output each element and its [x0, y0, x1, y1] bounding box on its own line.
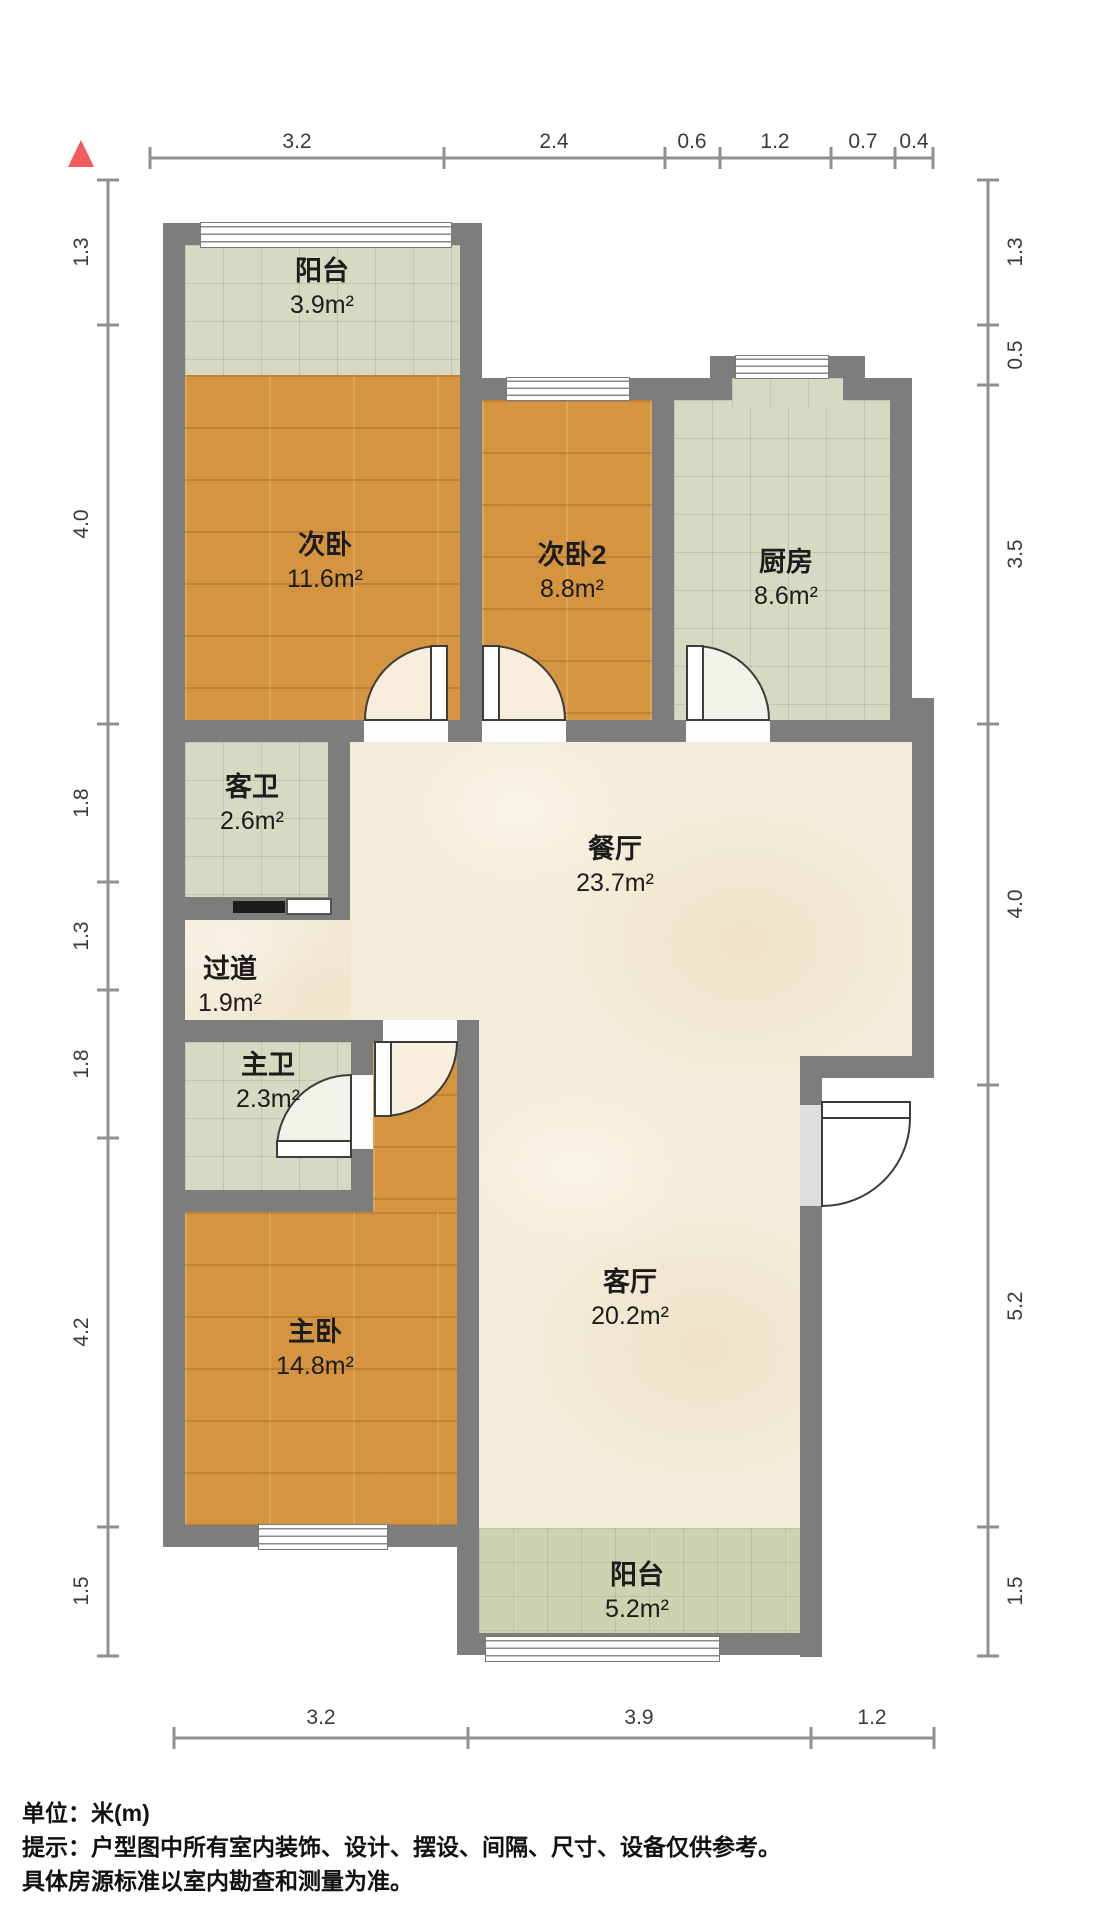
- dim-right-6: 1.5: [1004, 1576, 1028, 1605]
- window-balcony-bottom: [485, 1636, 720, 1662]
- wall: [912, 698, 934, 1078]
- dim-bottom-1: 3.2: [306, 1706, 335, 1730]
- dim-bottom-3: 1.2: [857, 1706, 886, 1730]
- window-kitchen: [735, 355, 829, 379]
- wall: [185, 720, 912, 742]
- wall: [163, 1020, 383, 1042]
- room-label-hallway: 过道 1.9m²: [140, 952, 320, 1020]
- dim-left-7: 1.5: [70, 1576, 94, 1605]
- dim-left-1: 1.3: [70, 237, 94, 266]
- wall: [460, 223, 482, 742]
- dim-top-4: 1.2: [760, 130, 789, 154]
- floor-master-bedroom-entry: [373, 1042, 457, 1212]
- room-label-guest-bath: 客卫 2.6m²: [162, 770, 342, 838]
- wall: [163, 1190, 373, 1212]
- room-label-master-bedroom: 主卧 14.8m²: [225, 1315, 405, 1383]
- room-label-bedroom1: 次卧 11.6m²: [235, 528, 415, 596]
- dim-top-1: 3.2: [282, 130, 311, 154]
- room-label-dining: 餐厅 23.7m²: [525, 832, 705, 900]
- wall: [800, 1056, 822, 1657]
- door-leaf-entry: [822, 1102, 910, 1118]
- wall: [163, 897, 350, 920]
- wall: [457, 1020, 479, 1525]
- footer-unit-note: 单位：米(m): [22, 1794, 150, 1828]
- dim-right-3: 3.5: [1004, 539, 1028, 568]
- dim-top-5: 0.7: [848, 130, 877, 154]
- dim-left-6: 4.2: [70, 1317, 94, 1346]
- dim-left-4: 1.3: [70, 921, 94, 950]
- wall: [163, 223, 185, 1547]
- floor-kitchen-bay: [732, 378, 843, 408]
- dim-top-2: 2.4: [539, 130, 568, 154]
- room-label-balcony-bottom: 阳台 5.2m²: [547, 1558, 727, 1626]
- dim-left-3: 1.8: [70, 788, 94, 817]
- room-label-balcony-top: 阳台 3.9m²: [232, 254, 412, 322]
- dim-top-3: 0.6: [677, 130, 706, 154]
- dim-right-5: 5.2: [1004, 1291, 1028, 1320]
- wall: [890, 378, 912, 720]
- window-bedroom2: [506, 377, 630, 401]
- wall: [843, 356, 865, 400]
- footer-tip-line2: 具体房源标准以室内勘查和测量为准。: [22, 1862, 413, 1896]
- dim-top-6: 0.4: [899, 130, 928, 154]
- window-balcony-top: [200, 222, 452, 248]
- dim-right-2: 0.5: [1004, 340, 1028, 369]
- window-master-bedroom: [258, 1524, 388, 1550]
- dim-bottom-2: 3.9: [624, 1706, 653, 1730]
- floor-dining: [350, 742, 912, 1078]
- floor-plan: 阳台 3.9m² 次卧 11.6m² 次卧2 8.8m² 厨房 8.6m² 客卫…: [0, 0, 1093, 1920]
- door-arc-entry: [822, 1118, 910, 1206]
- footer-tip-line1: 提示：户型图中所有室内装饰、设计、摆设、间隔、尺寸、设备仅供参考。: [22, 1828, 781, 1862]
- room-label-bedroom2: 次卧2 8.8m²: [482, 538, 662, 606]
- north-indicator-icon: [68, 140, 94, 167]
- dim-right-4: 4.0: [1004, 889, 1028, 918]
- dim-left-5: 1.8: [70, 1049, 94, 1078]
- room-label-master-bath: 主卫 2.3m²: [178, 1048, 358, 1116]
- room-label-living: 客厅 20.2m²: [540, 1265, 720, 1333]
- room-label-kitchen: 厨房 8.6m²: [696, 545, 876, 613]
- dim-left-2: 4.0: [70, 509, 94, 538]
- dim-right-1: 1.3: [1004, 237, 1028, 266]
